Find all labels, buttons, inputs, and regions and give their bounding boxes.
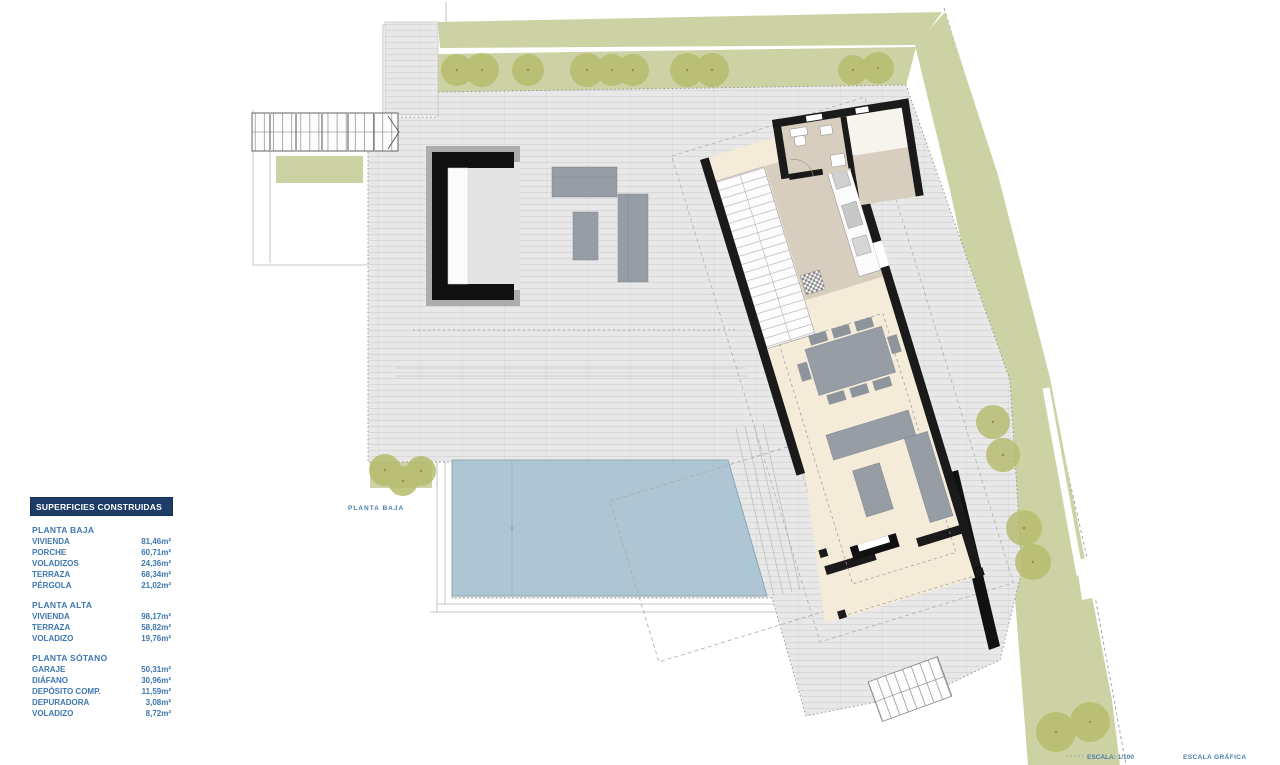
exterior-stairs-top	[252, 113, 399, 151]
legend-item-value: 50,31m²	[141, 664, 171, 675]
legend-item-value: 60,71m²	[141, 547, 171, 558]
legend-row: VOLADIZO19,76m²	[30, 633, 173, 644]
site-plan: PLANTA BAJA ESCALA: 1/100 ESCALA GRÁFICA	[0, 0, 1280, 765]
legend-item-label: VOLADIZO	[32, 633, 73, 644]
legend-item-label: VIVIENDA	[32, 536, 70, 547]
legend-item-label: TERRAZA	[32, 622, 70, 633]
legend-item-label: DEPÓSITO COMP.	[32, 686, 101, 697]
legend-item-label: VOLADIZOS	[32, 558, 79, 569]
legend-row: VOLADIZOS24,36m²	[30, 558, 173, 569]
legend-row: VOLADIZO8,72m²	[30, 708, 173, 719]
legend-section: PLANTA ALTAVIVIENDA98,17m²TERRAZA58,82m²…	[30, 600, 173, 644]
legend-row: GARAJE50,31m²	[30, 664, 173, 675]
legend-item-value: 81,46m²	[141, 536, 171, 547]
legend-item-value: 8,72m²	[146, 708, 171, 719]
legend-section: PLANTA SÓTANOGARAJE50,31m²DIÁFANO30,96m²…	[30, 653, 173, 719]
legend-section-title: PLANTA SÓTANO	[32, 653, 173, 663]
swimming-pool	[452, 460, 767, 596]
legend-row: DIÁFANO30,96m²	[30, 675, 173, 686]
legend-item-label: PORCHE	[32, 547, 66, 558]
legend-panel: SUPERFICIES CONSTRUIDAS PLANTA BAJAVIVIE…	[30, 497, 173, 719]
legend-sections: PLANTA BAJAVIVIENDA81,46m²PORCHE60,71m²V…	[30, 525, 173, 719]
legend-header: SUPERFICIES CONSTRUIDAS	[30, 497, 173, 516]
plan-title-label: PLANTA BAJA	[348, 505, 404, 512]
legend-item-label: VOLADIZO	[32, 708, 73, 719]
scale-label: ESCALA: 1/100	[1087, 754, 1134, 761]
legend-section: PLANTA BAJAVIVIENDA81,46m²PORCHE60,71m²V…	[30, 525, 173, 591]
legend-item-value: 98,17m²	[141, 611, 171, 622]
legend-row: TERRAZA68,34m²	[30, 569, 173, 580]
legend-section-title: PLANTA BAJA	[32, 525, 173, 535]
legend-item-value: 21,02m²	[141, 580, 171, 591]
legend-item-label: DEPURADORA	[32, 697, 89, 708]
legend-item-value: 68,34m²	[141, 569, 171, 580]
legend-row: DEPURADORA3,08m²	[30, 697, 173, 708]
legend-item-label: TERRAZA	[32, 569, 70, 580]
legend-item-value: 30,96m²	[141, 675, 171, 686]
legend-row: PÉRGOLA21,02m²	[30, 580, 173, 591]
legend-row: VIVIENDA81,46m²	[30, 536, 173, 547]
garden-strip-top	[438, 12, 942, 48]
legend-item-value: 58,82m²	[141, 622, 171, 633]
outdoor-fireplace	[426, 146, 520, 306]
legend-item-value: 11,59m²	[142, 686, 171, 697]
floor-plan-page: PLANTA BAJA ESCALA: 1/100 ESCALA GRÁFICA…	[0, 0, 1280, 765]
legend-item-label: VIVIENDA	[32, 611, 70, 622]
legend-item-label: PÉRGOLA	[32, 580, 72, 591]
legend-item-label: DIÁFANO	[32, 675, 68, 686]
legend-item-label: GARAJE	[32, 664, 65, 675]
planter-under-stairs	[276, 156, 363, 183]
graphic-scale-label: ESCALA GRÁFICA	[1183, 752, 1247, 761]
legend-item-value: 19,76m²	[141, 633, 171, 644]
legend-section-title: PLANTA ALTA	[32, 600, 173, 610]
legend-row: VIVIENDA98,17m²	[30, 611, 173, 622]
legend-item-value: 3,08m²	[146, 697, 171, 708]
legend-item-value: 24,36m²	[141, 558, 171, 569]
legend-row: PORCHE60,71m²	[30, 547, 173, 558]
legend-row: DEPÓSITO COMP.11,59m²	[30, 686, 173, 697]
legend-row: TERRAZA58,82m²	[30, 622, 173, 633]
